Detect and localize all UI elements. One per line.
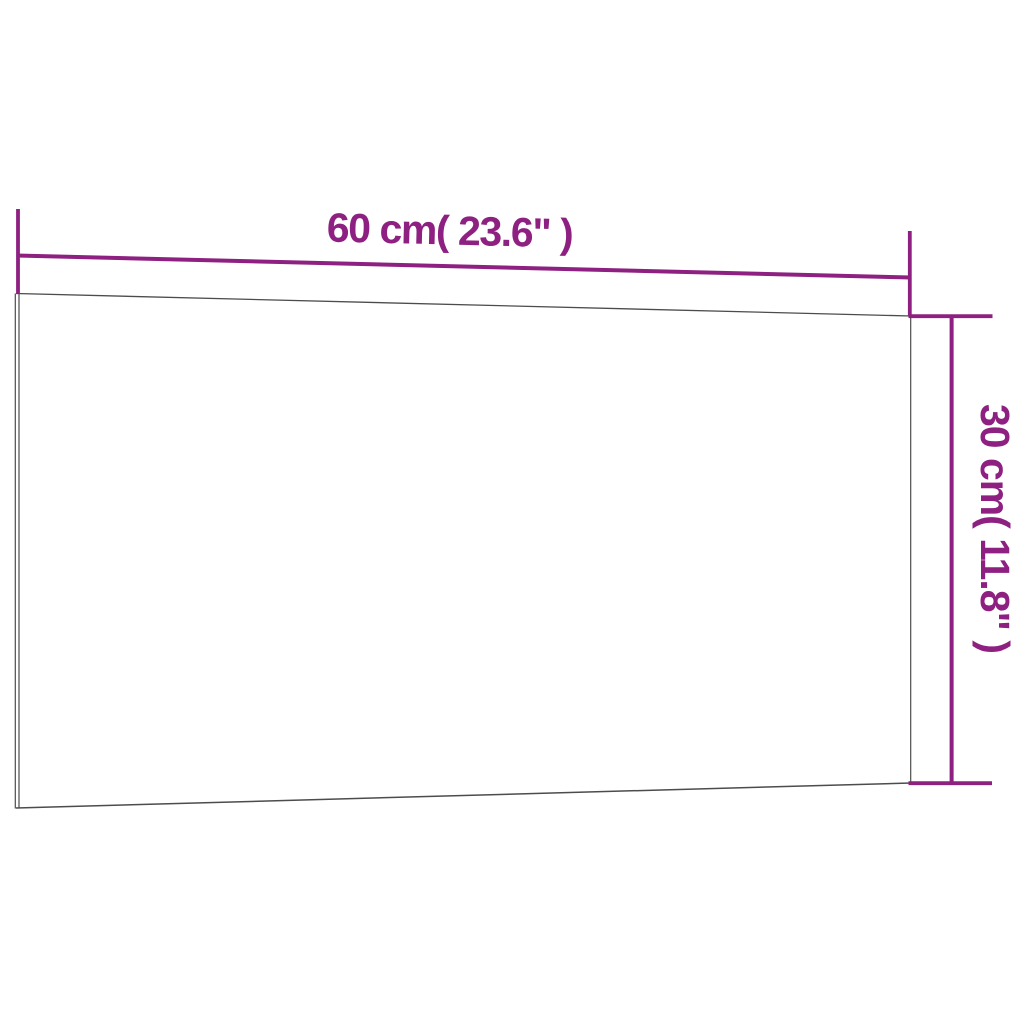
svg-text:60 cm( 23.6" ): 60 cm( 23.6" ) [326, 204, 574, 256]
svg-text:30 cm( 11.8" ): 30 cm( 11.8" ) [972, 404, 1018, 654]
